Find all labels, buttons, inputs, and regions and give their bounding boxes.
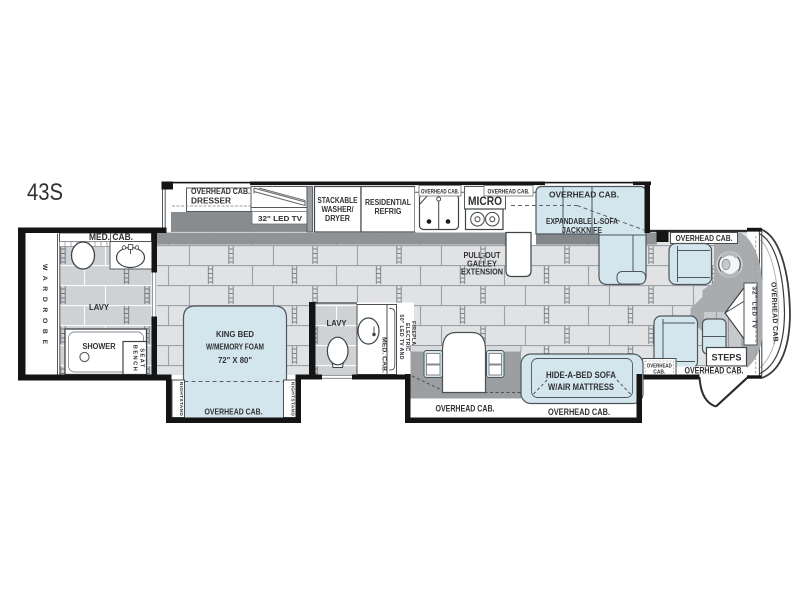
svg-text:W/AIR MATTRESS: W/AIR MATTRESS xyxy=(548,382,614,392)
svg-text:W/MEMORY FOAM: W/MEMORY FOAM xyxy=(206,343,264,352)
svg-text:OVERHEAD CAB.: OVERHEAD CAB. xyxy=(205,407,263,417)
svg-text:KING BED: KING BED xyxy=(216,330,254,339)
svg-text:OVERHEAD CAB.: OVERHEAD CAB. xyxy=(676,233,733,243)
svg-text:SEAT: SEAT xyxy=(139,348,145,367)
svg-text:32" LED TV: 32" LED TV xyxy=(751,287,758,330)
svg-text:OVERHEAD CAB.: OVERHEAD CAB. xyxy=(191,187,250,196)
svg-text:OVERHEAD CAB.: OVERHEAD CAB. xyxy=(685,366,744,376)
svg-text:RESIDENTIAL: RESIDENTIAL xyxy=(365,198,411,207)
svg-text:STEPS: STEPS xyxy=(712,353,742,363)
svg-text:MED. CAB.: MED. CAB. xyxy=(89,232,133,242)
svg-text:LAVY: LAVY xyxy=(327,319,348,328)
svg-text:DRYER: DRYER xyxy=(325,214,350,223)
svg-text:JACKKNIFE: JACKKNIFE xyxy=(562,225,602,235)
svg-text:50" LED TV AND: 50" LED TV AND xyxy=(398,315,404,360)
svg-text:STACKABLE: STACKABLE xyxy=(318,196,359,205)
svg-text:NIGHTSTAND: NIGHTSTAND xyxy=(178,382,184,417)
svg-text:OVERHEAD CAB.: OVERHEAD CAB. xyxy=(548,407,610,417)
svg-text:LAVY: LAVY xyxy=(89,303,110,312)
svg-text:32" LED TV: 32" LED TV xyxy=(258,214,302,223)
svg-text:72" X 80": 72" X 80" xyxy=(218,356,252,365)
svg-text:WASHER/: WASHER/ xyxy=(322,205,355,214)
svg-text:MED. CAB.: MED. CAB. xyxy=(381,337,388,373)
svg-text:SHOWER: SHOWER xyxy=(83,342,116,351)
svg-text:HIDE-A-BED SOFA: HIDE-A-BED SOFA xyxy=(546,370,617,380)
svg-text:BENCH: BENCH xyxy=(132,345,138,371)
svg-text:REFRIG: REFRIG xyxy=(375,207,402,216)
svg-text:OVERHEAD CAB.: OVERHEAD CAB. xyxy=(549,190,619,200)
svg-text:ELECTRIC: ELECTRIC xyxy=(404,323,410,351)
svg-text:DRESSER: DRESSER xyxy=(191,197,231,206)
svg-text:43S: 43S xyxy=(27,179,63,206)
svg-text:OVERHEAD CAB.: OVERHEAD CAB. xyxy=(488,189,530,196)
svg-text:EXTENSION: EXTENSION xyxy=(461,268,503,277)
svg-text:OVERHEAD CAB.: OVERHEAD CAB. xyxy=(421,189,459,196)
svg-text:OVERHEAD CAB.: OVERHEAD CAB. xyxy=(436,404,495,414)
svg-text:NIGHTSTAND: NIGHTSTAND xyxy=(290,382,296,417)
